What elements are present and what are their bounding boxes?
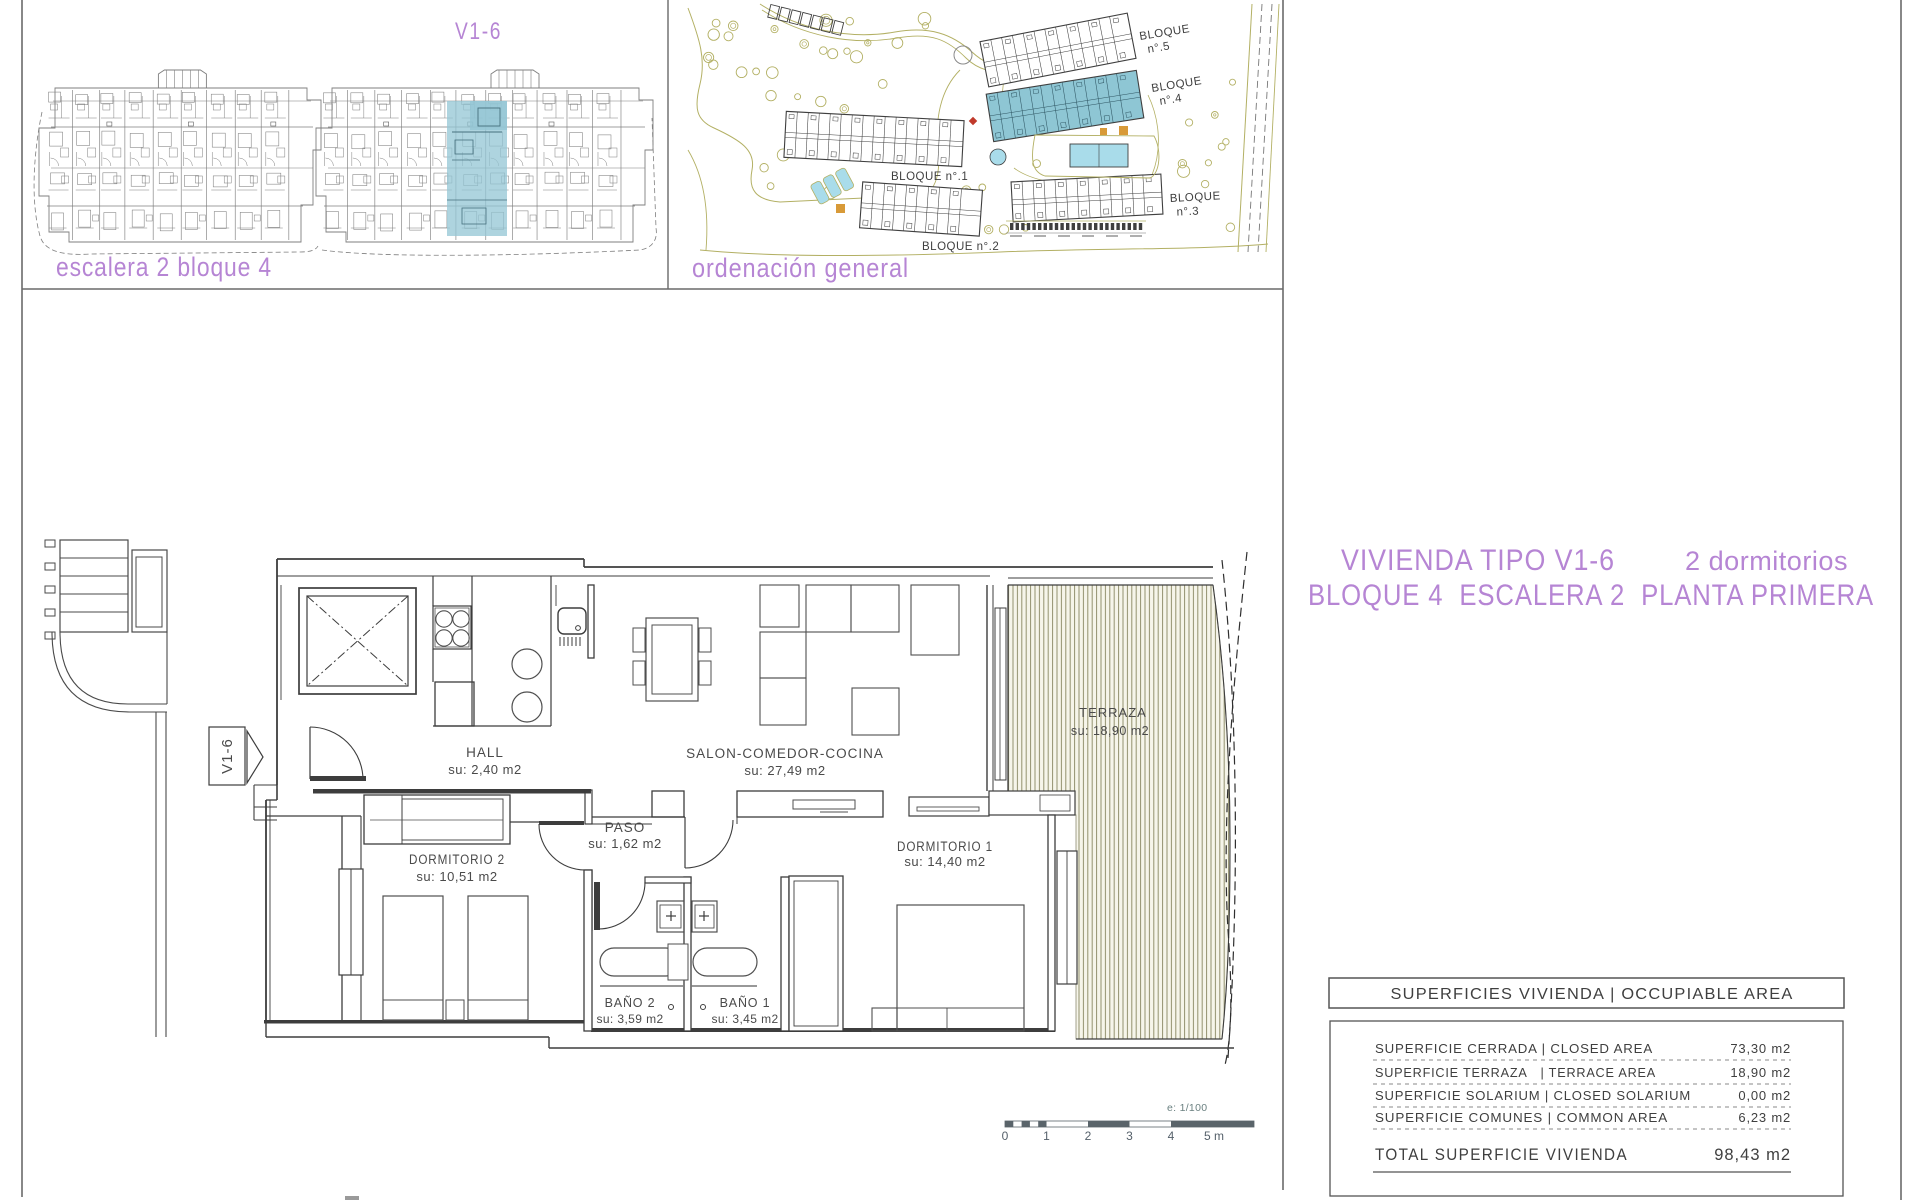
- svg-text:HALL: HALL: [466, 745, 504, 760]
- svg-text:BAÑO 2: BAÑO 2: [605, 996, 656, 1010]
- svg-text:73,30 m2: 73,30 m2: [1730, 1041, 1791, 1056]
- svg-text:SUPERFICIE CERRADA | CLOSED AR: SUPERFICIE CERRADA | CLOSED AREA: [1375, 1041, 1653, 1056]
- svg-text:SALON-COMEDOR-COCINA: SALON-COMEDOR-COCINA: [686, 746, 884, 761]
- svg-text:V1-6: V1-6: [219, 738, 236, 774]
- svg-text:6,23 m2: 6,23 m2: [1738, 1110, 1791, 1125]
- svg-text:su: 18,90 m2: su: 18,90 m2: [1071, 724, 1149, 738]
- svg-text:SUPERFICIES VIVIENDA | OCCUPIA: SUPERFICIES VIVIENDA | OCCUPIABLE AREA: [1391, 986, 1794, 1003]
- svg-text:0: 0: [1002, 1129, 1009, 1143]
- svg-text:SUPERFICIE TERRAZA | TERRACE: SUPERFICIE TERRAZA | TERRACE AREA: [1375, 1065, 1656, 1080]
- svg-text:BLOQUE n°.2: BLOQUE n°.2: [922, 241, 999, 253]
- svg-text:e: 1/100: e: 1/100: [1167, 1102, 1207, 1114]
- svg-text:3: 3: [1126, 1129, 1133, 1143]
- svg-text:1: 1: [1043, 1129, 1050, 1143]
- svg-text:0,00 m2: 0,00 m2: [1738, 1088, 1791, 1103]
- svg-text:su: 2,40 m2: su: 2,40 m2: [448, 762, 521, 777]
- svg-text:su: 14,40 m2: su: 14,40 m2: [904, 854, 985, 869]
- svg-text:SUPERFICIE COMUNES | COMMON AR: SUPERFICIE COMUNES | COMMON AREA: [1375, 1110, 1668, 1125]
- svg-text:n°.3: n°.3: [1176, 205, 1199, 218]
- svg-text:2 dormitorios: 2 dormitorios: [1685, 546, 1848, 576]
- svg-text:DORMITORIO 2: DORMITORIO 2: [409, 852, 505, 867]
- svg-text:escalera 2 bloque 4: escalera 2 bloque 4: [56, 252, 272, 282]
- svg-text:su: 10,51 m2: su: 10,51 m2: [416, 869, 497, 884]
- svg-text:BLOQUE 4 ESCALERA 2 PLANTA P: BLOQUE 4 ESCALERA 2 PLANTA PRIMERA: [1308, 579, 1874, 612]
- svg-text:5 m: 5 m: [1204, 1129, 1224, 1143]
- svg-text:DORMITORIO 1: DORMITORIO 1: [897, 839, 993, 854]
- svg-text:SUPERFICIE SOLARIUM | CLOSED S: SUPERFICIE SOLARIUM | CLOSED SOLARIUM: [1375, 1088, 1691, 1103]
- svg-text:TERRAZA: TERRAZA: [1079, 705, 1147, 720]
- svg-text:BAÑO 1: BAÑO 1: [720, 996, 771, 1010]
- svg-text:V1-6: V1-6: [455, 18, 502, 45]
- svg-text:su: 1,62 m2: su: 1,62 m2: [588, 836, 661, 851]
- svg-text:2: 2: [1085, 1129, 1092, 1143]
- svg-text:su: 27,49 m2: su: 27,49 m2: [744, 763, 825, 778]
- svg-text:PASO: PASO: [605, 820, 646, 835]
- svg-text:VIVIENDA TIPO V1-6: VIVIENDA TIPO V1-6: [1341, 544, 1615, 577]
- svg-text:98,43 m2: 98,43 m2: [1714, 1146, 1791, 1164]
- svg-text:4: 4: [1168, 1129, 1175, 1143]
- svg-text:ordenación general: ordenación general: [692, 253, 909, 283]
- svg-text:su: 3,59 m2: su: 3,59 m2: [596, 1012, 663, 1026]
- svg-text:su: 3,45 m2: su: 3,45 m2: [711, 1012, 778, 1026]
- svg-text:BLOQUE n°.1: BLOQUE n°.1: [891, 171, 968, 183]
- svg-text:18,90 m2: 18,90 m2: [1730, 1065, 1791, 1080]
- svg-text:TOTAL SUPERFICIE VIVIENDA: TOTAL SUPERFICIE VIVIENDA: [1375, 1146, 1628, 1164]
